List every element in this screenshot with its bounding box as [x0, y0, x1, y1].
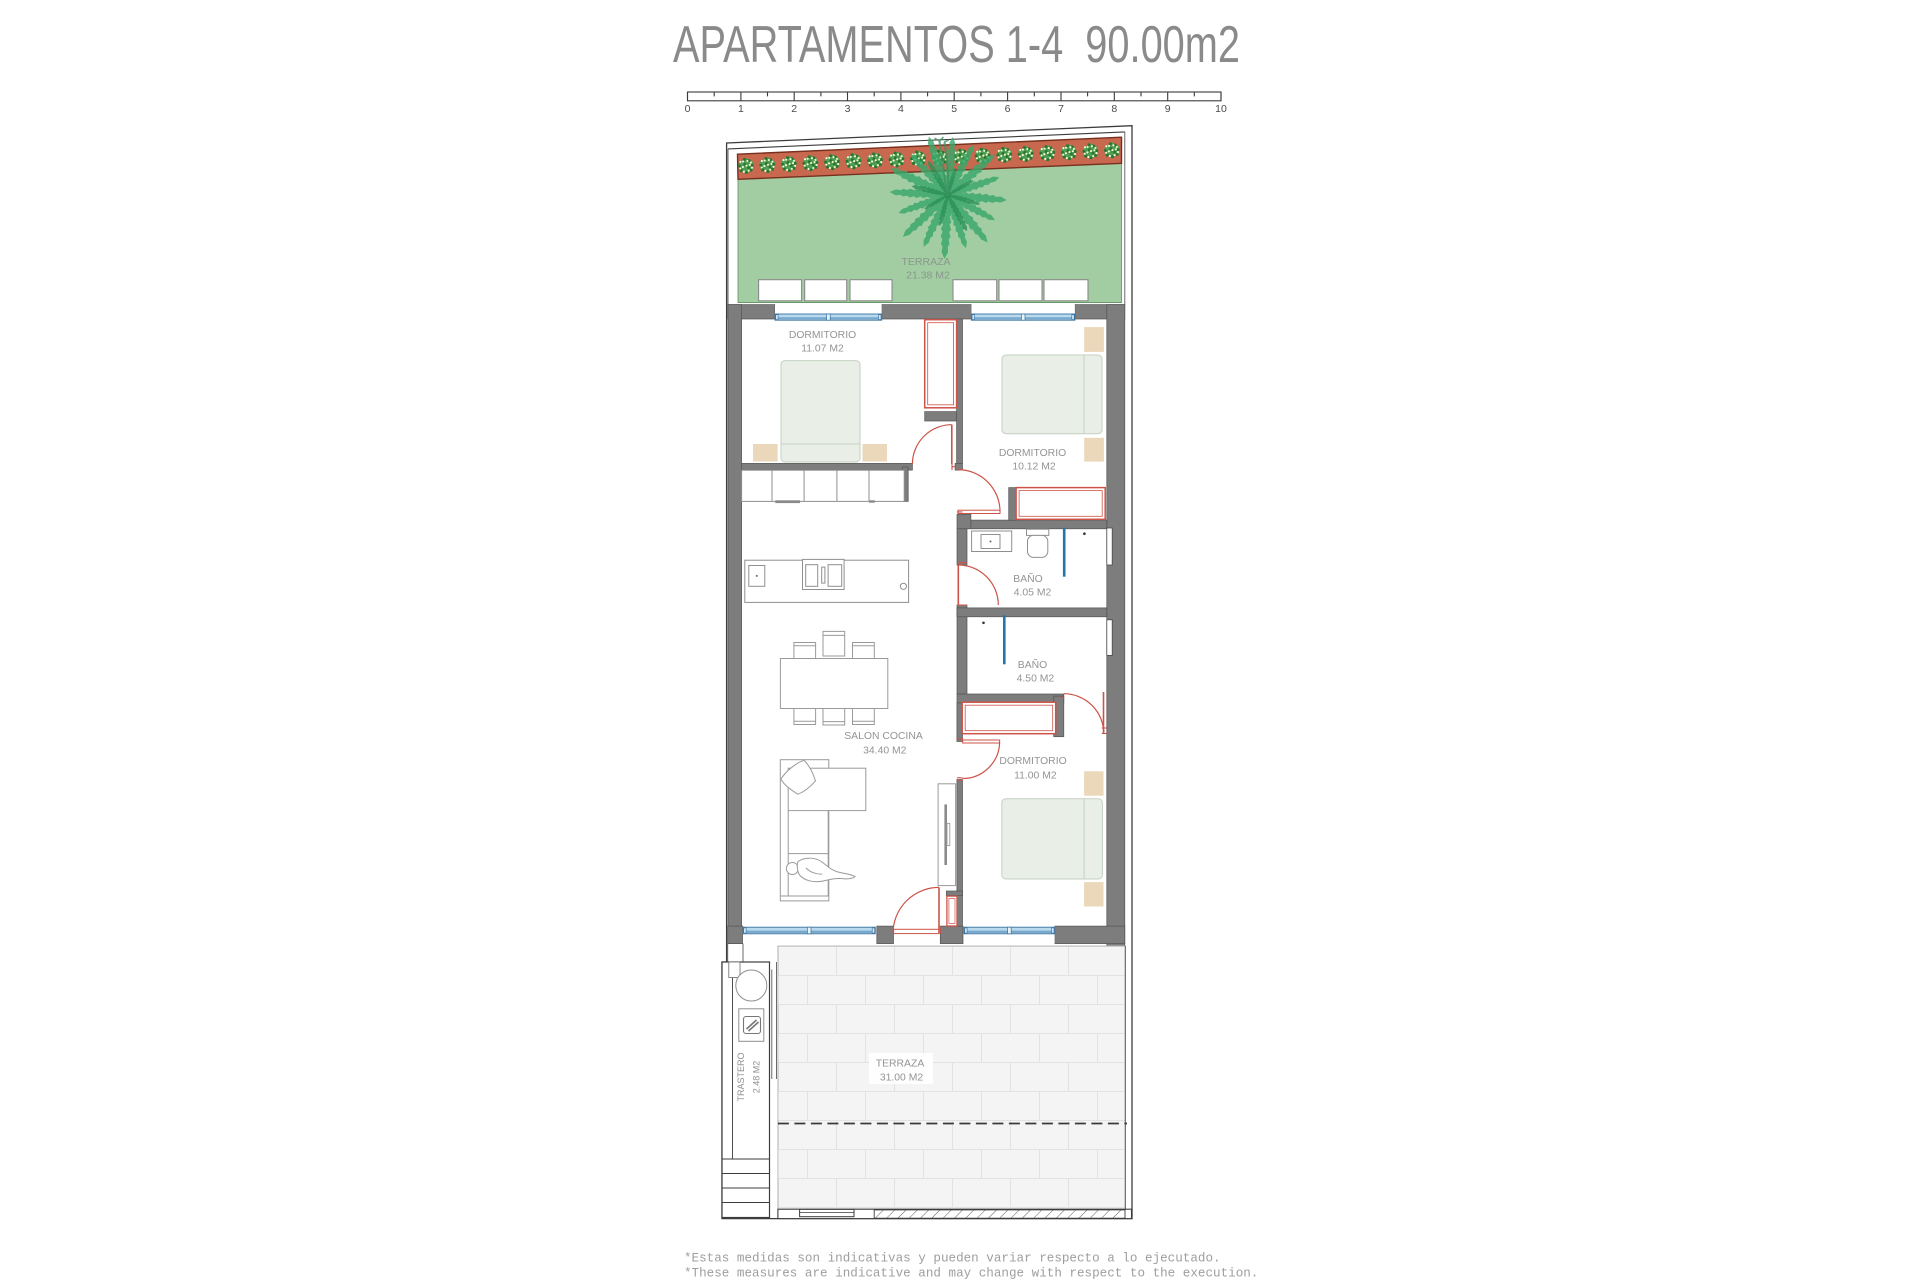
svg-text:TERRAZA: TERRAZA: [901, 256, 950, 268]
svg-text:11.07 M2: 11.07 M2: [801, 344, 844, 355]
svg-text:BAÑO: BAÑO: [1013, 572, 1042, 585]
svg-text:10: 10: [1215, 103, 1227, 115]
svg-text:5: 5: [951, 103, 957, 115]
svg-text:BAÑO: BAÑO: [1018, 658, 1047, 671]
svg-text:6: 6: [1005, 103, 1011, 115]
svg-text:2: 2: [791, 103, 797, 115]
svg-text:8: 8: [1111, 103, 1117, 115]
svg-text:34.40 M2: 34.40 M2: [863, 746, 907, 757]
svg-text:*These measures are indicative: *These measures are indicative and may c…: [684, 1267, 1258, 1280]
svg-text:*Estas medidas son indicativas: *Estas medidas son indicativas y pueden …: [684, 1252, 1221, 1266]
svg-text:4.50 M2: 4.50 M2: [1017, 674, 1055, 685]
svg-text:10.12 M2: 10.12 M2: [1012, 462, 1056, 473]
svg-text:DORMITORIO: DORMITORIO: [999, 448, 1066, 459]
svg-text:0: 0: [685, 103, 691, 115]
svg-text:21.38 M2: 21.38 M2: [906, 270, 950, 282]
svg-text:31.00 M2: 31.00 M2: [880, 1073, 924, 1084]
svg-text:TERRAZA: TERRAZA: [876, 1059, 925, 1070]
svg-text:4: 4: [898, 103, 904, 115]
svg-text:7: 7: [1058, 103, 1064, 115]
svg-text:9: 9: [1165, 103, 1171, 115]
svg-text:2.48 M2: 2.48 M2: [752, 1061, 762, 1094]
svg-text:SALON COCINA: SALON COCINA: [844, 731, 923, 742]
svg-text:DORMITORIO: DORMITORIO: [999, 756, 1066, 767]
svg-text:11.00 M2: 11.00 M2: [1014, 771, 1057, 782]
svg-text:TRASTERO: TRASTERO: [736, 1052, 746, 1101]
svg-text:DORMITORIO: DORMITORIO: [789, 330, 856, 341]
svg-text:4.05 M2: 4.05 M2: [1014, 588, 1052, 599]
svg-text:1: 1: [738, 103, 744, 115]
svg-text:3: 3: [845, 103, 851, 115]
svg-text:APARTAMENTOS 1-4 90.00m2: APARTAMENTOS 1-4 90.00m2: [673, 16, 1240, 74]
